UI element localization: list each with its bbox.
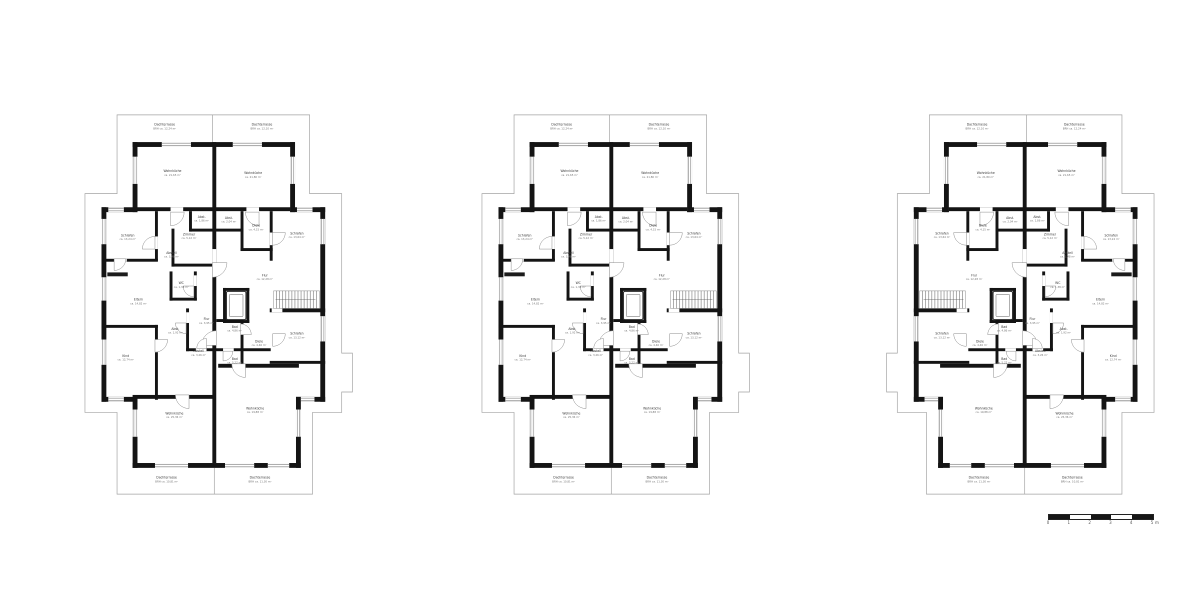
wall	[172, 264, 216, 267]
room-label: Flur	[659, 273, 666, 277]
window	[985, 463, 1014, 468]
door-opening	[957, 308, 968, 312]
wall	[914, 361, 969, 364]
door-swing-icon	[1012, 263, 1027, 278]
room-label: Diele	[979, 224, 987, 228]
staircase-icon	[274, 291, 320, 309]
plan-geometry	[482, 115, 749, 494]
door-swing-icon	[142, 236, 155, 249]
door-opening	[966, 233, 969, 246]
room-label: Schlafen	[935, 332, 948, 336]
room-label: Schlafen	[687, 332, 700, 336]
floor-plan-right: DachterrasseBRH ca. 12,24 m²Dachterrasse…	[868, 110, 1160, 499]
room-area-label: ca. 3,26 m²	[1033, 353, 1048, 357]
door-opening	[171, 207, 184, 212]
room-area-label: ca. 3,95 m²	[596, 321, 611, 325]
wall	[1023, 142, 1027, 463]
room-label: Flur	[1030, 317, 1037, 321]
window	[301, 397, 315, 402]
room-label: Dachterrasse	[1062, 476, 1083, 480]
wall	[586, 211, 589, 231]
door-swing-icon	[552, 340, 565, 353]
scale-bar-segments	[1048, 514, 1154, 520]
doors-layer	[114, 212, 285, 408]
room-area-label: ca. 14,82 m²	[1092, 301, 1109, 305]
window	[687, 157, 692, 184]
room-label: Zimmer	[1044, 232, 1057, 236]
room-area-label: ca. 3,26 m²	[588, 353, 603, 357]
room-label: Dachterrasse	[967, 123, 988, 127]
door-opening	[966, 334, 969, 347]
door-swing-icon	[1050, 395, 1064, 409]
room-label: Dachterrasse	[649, 123, 670, 127]
room-label: Diele	[649, 224, 657, 228]
room-area-label: ca. 5,12 m²	[182, 236, 197, 240]
room-label: Wohnküche	[643, 407, 661, 411]
door-opening	[270, 233, 273, 246]
door-opening	[1056, 207, 1069, 212]
doors-layer	[954, 212, 1125, 408]
wall	[569, 264, 613, 267]
wall	[172, 229, 175, 267]
window	[559, 142, 588, 147]
room-label: Wohnküche	[975, 407, 993, 411]
window	[320, 316, 325, 341]
wall	[990, 288, 993, 323]
door-swing-icon	[609, 263, 624, 278]
room-label: Kind	[122, 354, 129, 358]
room-area-label: ca. 12,74 m²	[118, 358, 135, 362]
room-label: Wohnküche	[1056, 411, 1074, 415]
scale-tick-label: 4	[1130, 520, 1133, 525]
door-swing-icon	[954, 233, 967, 246]
room-label: Flur	[971, 273, 978, 277]
wall	[155, 325, 158, 400]
room-area-label: ca. 1,86 m²	[194, 219, 209, 223]
room-label: Dachterrasse	[154, 123, 175, 127]
door-opening	[609, 249, 613, 263]
room-area-label: ca. 1,38 m²	[571, 285, 586, 289]
room-area-label: ca. 5,12 m²	[579, 236, 594, 240]
room-area-label: ca. 21,80 m²	[245, 175, 262, 179]
wall	[530, 395, 613, 399]
door-swing-icon	[197, 339, 207, 349]
room-label: Flur	[601, 317, 608, 321]
room-area-label: ca. 3,48 m²	[164, 255, 179, 259]
window	[552, 463, 585, 468]
room-label: Schlafen	[121, 233, 134, 237]
window	[133, 157, 138, 184]
room-label: Schlafen	[687, 231, 700, 235]
room-area-label: ca. 12,74 m²	[1105, 358, 1122, 362]
room-label: Diele	[652, 339, 660, 343]
room-area-label: ca. 4,86 m²	[997, 329, 1012, 333]
window	[297, 207, 313, 212]
wall	[638, 248, 670, 251]
floor-plan-left-drawing: DachterrasseBRH ca. 12,24 m²Dachterrasse…	[79, 110, 371, 499]
room-label: Wohnküche	[560, 169, 578, 173]
window	[926, 207, 942, 212]
wall	[1042, 298, 1069, 301]
door-opening	[980, 207, 993, 212]
room-label: WC	[576, 281, 581, 285]
door-opening	[669, 308, 680, 312]
room-area-label: ca. 13,24 m²	[1103, 237, 1120, 241]
door-opening	[155, 236, 158, 249]
room-label: Schlafen	[935, 231, 948, 235]
room-area-label: BRH ca. 12,24 m²	[550, 126, 573, 130]
window	[530, 410, 535, 437]
room-area-label: ca. 13,64 m²	[289, 235, 306, 239]
wall	[552, 211, 555, 261]
page: DachterrasseBRH ca. 12,24 m²Dachterrasse…	[0, 0, 1200, 600]
wall	[966, 248, 998, 251]
door-opening	[246, 207, 259, 212]
wall-annotation-mark	[1111, 272, 1131, 276]
room-area-label: ca. 5,22 m²	[227, 361, 242, 365]
room-area-label: ca. 12,28 m²	[966, 277, 983, 281]
scale-bar-segment	[1132, 515, 1153, 519]
room-label: Bad	[232, 325, 238, 329]
room-area-label: ca. 13,64 m²	[934, 235, 951, 239]
scale-bar-segment	[1091, 515, 1112, 519]
window	[630, 142, 659, 147]
window	[162, 142, 191, 147]
door-swing-icon	[568, 212, 582, 226]
window	[622, 463, 651, 468]
room-area-label: ca. 14,82 m²	[130, 301, 147, 305]
scale-tick-label: 5	[1151, 520, 1154, 525]
room-area-label: ca. 1,86 m²	[1030, 219, 1045, 223]
plan-geometry	[85, 115, 352, 494]
room-area-label: ca. 21,80 m²	[642, 175, 659, 179]
room-label: Zimmer	[183, 232, 196, 236]
room-label: Dachterrasse	[156, 476, 177, 480]
room-area-label: ca. 4,86 m²	[227, 329, 242, 333]
window	[1115, 397, 1131, 402]
room-label: Wohnküche	[246, 407, 264, 411]
door-swing-icon	[670, 233, 683, 246]
room-label: Dachterrasse	[969, 476, 990, 480]
room-area-label: ca. 1,38 m²	[1050, 285, 1065, 289]
wall	[170, 271, 173, 300]
room-label: Wohnküche	[163, 169, 181, 173]
wall	[498, 259, 554, 262]
room-area-label: ca. 13,24 m²	[516, 237, 533, 241]
room-label: Bad	[1001, 357, 1007, 361]
room-area-label: BRH ca. 10,81 m²	[1061, 479, 1084, 483]
room-area-label: ca. 3,95 m²	[199, 321, 214, 325]
wall	[567, 271, 570, 300]
window	[268, 463, 289, 468]
door-opening	[1050, 312, 1053, 323]
room-area-label: ca. 21,80 m²	[978, 175, 995, 179]
door-swing-icon	[1071, 340, 1084, 353]
wall	[1081, 325, 1084, 400]
room-label: Schlafen	[1105, 233, 1118, 237]
room-label: Abst.	[171, 327, 179, 331]
room-label: Wohnküche	[562, 411, 580, 415]
room-label: Diele	[976, 339, 984, 343]
window	[698, 397, 712, 402]
room-area-label: ca. 25,36 m²	[166, 415, 183, 419]
door-swing-icon	[511, 259, 523, 271]
room-label: Bad	[232, 357, 238, 361]
door-opening	[212, 249, 216, 263]
wall	[223, 288, 249, 291]
room-label: Kind	[1110, 354, 1117, 358]
room-label: WC	[179, 281, 184, 285]
door-swing-icon	[539, 236, 552, 249]
room-label: Kind	[519, 354, 526, 358]
window	[1115, 207, 1131, 212]
room-label: Bad	[1001, 325, 1007, 329]
room-label: Diele	[252, 224, 260, 228]
door-swing-icon	[114, 259, 126, 271]
door-opening	[194, 275, 197, 286]
floor-plan-left: DachterrasseBRH ca. 12,24 m²Dachterrasse…	[79, 110, 371, 499]
door-opening	[186, 312, 189, 323]
room-label: Abstell	[563, 251, 574, 255]
window	[914, 316, 919, 341]
room-label: Dachterrasse	[647, 476, 668, 480]
window	[1102, 157, 1107, 184]
room-area-label: ca. 3,48 m²	[1060, 255, 1075, 259]
door-swing-icon	[273, 233, 286, 246]
room-area-label: ca. 4,46 m²	[649, 343, 664, 347]
room-area-label: ca. 5,22 m²	[624, 361, 639, 365]
room-area-label: ca. 3,95 m²	[1025, 321, 1040, 325]
room-label: Abst.	[595, 215, 603, 219]
plan-geometry	[887, 115, 1154, 494]
wall	[643, 288, 646, 323]
door-swing-icon	[232, 364, 246, 378]
window	[938, 410, 943, 437]
room-area-label: ca. 21,65 m²	[561, 173, 578, 177]
scale-tick-label: 2	[1088, 520, 1091, 525]
scale-bar-segment	[1070, 515, 1091, 519]
room-label: Wohnküche	[1058, 169, 1076, 173]
window	[320, 219, 325, 244]
window	[133, 410, 138, 437]
wall	[586, 229, 640, 232]
room-label: Abst.	[622, 216, 630, 220]
room-area-label: ca. 3,48 m²	[561, 255, 576, 259]
staircase-icon	[671, 291, 717, 309]
room-label: Schlafen	[290, 332, 303, 336]
window	[693, 410, 698, 437]
door-opening	[223, 348, 234, 351]
door-opening	[667, 233, 670, 246]
room-area-label: ca. 4,46 m²	[252, 343, 267, 347]
room-label: Abst.	[1006, 216, 1014, 220]
room-area-label: ca. 12,74 m²	[515, 358, 532, 362]
door-swing-icon	[171, 212, 185, 226]
room-label: Schlafen	[518, 233, 531, 237]
room-label: Abst.	[225, 216, 233, 220]
elevator-icon	[993, 291, 1012, 319]
room-area-label: ca. 19,88 m²	[644, 410, 661, 414]
window	[1133, 340, 1138, 365]
scale-unit-label: m	[1155, 520, 1159, 525]
room-label: Dachterrasse	[551, 123, 572, 127]
door-opening	[1081, 236, 1084, 249]
door-swing-icon	[670, 334, 683, 347]
staircase-icon	[920, 291, 966, 309]
door-opening	[591, 275, 594, 286]
window	[1133, 219, 1138, 244]
wall	[620, 288, 623, 323]
window	[944, 157, 949, 184]
scale-bar-segment	[1111, 515, 1132, 519]
window	[498, 340, 503, 365]
door-opening	[667, 334, 670, 347]
room-area-label: ca. 2,04 m²	[618, 220, 633, 224]
window	[498, 277, 503, 300]
room-label: Dachterrasse	[250, 476, 271, 480]
scale-tick-label: 0	[1047, 520, 1050, 525]
wall	[270, 361, 325, 364]
room-label: Eltern	[531, 298, 540, 302]
wall	[609, 142, 613, 463]
door-opening	[272, 308, 283, 312]
room-area-label: BRH ca. 12,10 m²	[966, 126, 989, 130]
window	[108, 207, 124, 212]
room-label: Dachterrasse	[1064, 123, 1085, 127]
wall	[101, 325, 157, 328]
scale-tick-label: 1	[1068, 520, 1071, 525]
wall	[137, 207, 290, 211]
room-area-label: BRH ca. 12,10 m²	[250, 126, 273, 130]
window	[665, 463, 686, 468]
window	[717, 316, 722, 341]
scale-bar: 012345m	[1048, 514, 1154, 528]
room-label: Schlafen	[290, 231, 303, 235]
room-area-label: BRH ca. 12,10 m²	[647, 126, 670, 130]
door-swing-icon	[1006, 351, 1016, 361]
wall	[223, 288, 226, 323]
window	[296, 410, 301, 437]
door-opening	[620, 348, 631, 351]
room-label: Flur	[262, 273, 269, 277]
window	[101, 219, 106, 244]
wall	[189, 211, 192, 231]
room-area-label: ca. 3,26 m²	[191, 353, 206, 357]
wall	[534, 207, 687, 211]
wall	[241, 248, 273, 251]
room-area-label: ca. 4,46 m²	[973, 343, 988, 347]
room-area-label: ca. 4,86 m²	[624, 329, 639, 333]
wall	[990, 288, 1016, 291]
room-area-label: ca. 19,88 m²	[247, 410, 264, 414]
door-swing-icon	[572, 395, 586, 409]
window	[101, 277, 106, 300]
door-swing-icon	[1084, 236, 1097, 249]
wall	[552, 325, 555, 400]
door-opening	[1042, 275, 1045, 286]
window	[225, 463, 254, 468]
room-area-label: ca. 2,04 m²	[1003, 220, 1018, 224]
room-label: Abstell	[590, 349, 601, 353]
door-swing-icon	[155, 340, 168, 353]
room-area-label: ca. 2,04 m²	[221, 220, 236, 224]
room-area-label: ca. 1,38 m²	[174, 285, 189, 289]
elevator-icon	[623, 291, 642, 319]
wall	[1081, 211, 1084, 261]
door-swing-icon	[1113, 259, 1125, 271]
room-label: WC	[1055, 281, 1060, 285]
room-area-label: ca. 12,28 m²	[654, 277, 671, 281]
wall	[1013, 288, 1016, 323]
window	[505, 207, 521, 212]
room-area-label: BRH ca. 10,81 m²	[155, 479, 178, 483]
window	[925, 397, 939, 402]
window	[1102, 410, 1107, 437]
room-area-label: ca. 4,15 m²	[646, 227, 661, 231]
room-area-label: ca. 21,65 m²	[1058, 173, 1075, 177]
room-label: Wohnküche	[244, 171, 262, 175]
wall	[246, 288, 249, 323]
floor-plan-center: DachterrasseBRH ca. 12,24 m²Dachterrasse…	[476, 110, 768, 499]
scale-tick-label: 3	[1109, 520, 1112, 525]
room-label: Eltern	[134, 298, 143, 302]
room-area-label: BRH ca. 11,30 m²	[967, 479, 990, 483]
room-area-label: BRH ca. 12,24 m²	[1063, 126, 1086, 130]
room-label: Wohnküche	[165, 411, 183, 415]
room-label: Flur	[204, 317, 211, 321]
wall	[1024, 264, 1068, 267]
door-opening	[552, 236, 555, 249]
room-area-label: ca. 19,88 m²	[976, 410, 993, 414]
room-area-label: ca. 4,15 m²	[975, 227, 990, 231]
wall	[620, 288, 646, 291]
room-area-label: ca. 25,36 m²	[563, 415, 580, 419]
room-area-label: ca. 13,24 m²	[119, 237, 136, 241]
room-area-label: ca. 14,82 m²	[527, 301, 544, 305]
room-label: Eltern	[1096, 298, 1105, 302]
room-area-label: ca. 12,28 m²	[257, 277, 274, 281]
room-label: Abstell	[1035, 349, 1046, 353]
wall	[567, 298, 594, 301]
room-area-label: ca. 21,65 m²	[164, 173, 181, 177]
wall	[569, 229, 572, 267]
room-area-label: BRH ca. 10,81 m²	[552, 479, 575, 483]
wall	[1065, 229, 1068, 267]
room-area-label: ca. 13,12 m²	[934, 335, 951, 339]
wall	[1024, 395, 1107, 399]
wall	[498, 325, 554, 328]
window	[950, 463, 971, 468]
elevator-icon	[226, 291, 245, 319]
window	[108, 397, 124, 402]
room-area-label: ca. 1,92 m²	[565, 330, 580, 334]
door-opening	[270, 334, 273, 347]
wall	[667, 361, 722, 364]
door-swing-icon	[954, 334, 967, 347]
wall	[155, 211, 158, 261]
door-opening	[1005, 348, 1016, 351]
room-area-label: BRH ca. 12,24 m²	[153, 126, 176, 130]
room-area-label: ca. 13,12 m²	[289, 335, 306, 339]
door-swing-icon	[594, 339, 604, 349]
window	[290, 157, 295, 184]
room-area-label: ca. 1,92 m²	[168, 330, 183, 334]
window	[101, 340, 106, 365]
door-swing-icon	[212, 263, 227, 278]
wall	[133, 395, 216, 399]
window	[1051, 463, 1084, 468]
wall	[1081, 259, 1137, 262]
